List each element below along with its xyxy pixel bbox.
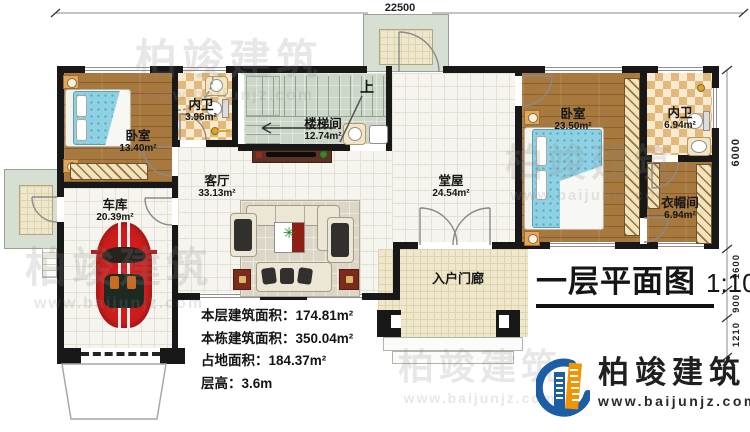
bedroom2-blanket xyxy=(560,129,602,228)
room-area: 33.13m² xyxy=(185,188,249,199)
opening-side-porch-door xyxy=(57,197,64,222)
plan-title-block: 一层平面图 1:100 xyxy=(536,256,718,308)
plan-scale: 1:100 xyxy=(706,268,750,299)
armchair-left-cushion xyxy=(234,219,252,251)
stat-value: 184.37m² xyxy=(269,353,327,368)
room-name: 客厅 xyxy=(185,174,249,188)
label-entry-porch: 入户门廊 xyxy=(405,272,511,287)
bedroom1-wardrobe xyxy=(70,163,148,180)
car-mirror-right xyxy=(151,250,157,254)
stat-row-footprint: 占地面积：184.37m² xyxy=(201,350,353,373)
opening-bath1-door xyxy=(180,140,206,147)
label-hall: 堂屋 24.54m² xyxy=(419,174,483,199)
window-bath2-east xyxy=(712,88,719,128)
driveway-outline xyxy=(62,364,166,419)
opening-stair-living xyxy=(350,144,386,151)
sofa-front-pillow-1 xyxy=(261,267,277,285)
sofa-front-pillow-2 xyxy=(280,268,294,284)
company-logo-icon xyxy=(536,356,590,422)
wall-hall-stub xyxy=(393,242,400,300)
window-bath2-north xyxy=(658,66,703,73)
floor-plan-canvas: ✳ xyxy=(0,0,750,432)
opening-bedroom2-door xyxy=(515,76,522,106)
label-garage: 车库 20.39m² xyxy=(82,198,148,223)
opening-bedroom1-door xyxy=(172,147,178,176)
bedroom1-pillow-1 xyxy=(76,95,87,117)
entry-steps-upper xyxy=(383,337,523,351)
stat-row-floor-area: 本层建筑面积：174.81m² xyxy=(201,305,353,328)
porch-post-right-base xyxy=(499,315,509,328)
stat-value: 174.81m² xyxy=(296,308,354,323)
opening-bath2-door xyxy=(652,155,678,162)
bedroom2-pillow-1 xyxy=(536,136,547,166)
dim-top-value: 22500 xyxy=(368,2,432,14)
stat-label: 本层建筑面积： xyxy=(201,308,296,323)
room-area: 13.40m² xyxy=(105,143,171,154)
car-mirror-left xyxy=(91,250,97,254)
bath1-sink-bowl xyxy=(210,79,223,92)
dim-right-value: 6000 xyxy=(730,138,742,166)
wall-bedroom1-south xyxy=(57,182,178,188)
stair-landing xyxy=(246,76,280,116)
plan-title: 一层平面图 xyxy=(536,256,696,301)
stat-label: 层高： xyxy=(201,376,242,391)
room-name: 入户门廊 xyxy=(405,272,511,287)
room-area: 3.96m² xyxy=(174,112,228,123)
stair-appliance xyxy=(369,125,388,144)
garage-post-right xyxy=(160,348,185,364)
stair-up-text: 上 xyxy=(357,80,377,96)
car-seat-left xyxy=(110,276,119,289)
room-name: 楼梯间 xyxy=(291,117,355,131)
room-name: 车库 xyxy=(82,198,148,212)
bath2-sink-bowl xyxy=(691,140,707,153)
room-name: 内卫 xyxy=(650,106,710,120)
window-bedroom2-north xyxy=(545,66,622,73)
stat-row-height: 层高：3.6m xyxy=(201,373,353,396)
stat-value: 3.6m xyxy=(242,376,273,391)
dim-right-seg-1210: 1210 xyxy=(731,322,742,347)
bedroom2-wardrobe xyxy=(624,78,640,236)
room-area: 24.54m² xyxy=(419,188,483,199)
tv-screen xyxy=(266,152,316,157)
company-website: www.baijunjz.com xyxy=(598,393,750,409)
bedroom2-nightstand-bottom xyxy=(524,231,540,246)
label-stair-up: 上 xyxy=(357,80,377,96)
bedroom2-nightstand-top xyxy=(524,110,540,125)
window-bedroom1-north xyxy=(85,66,150,73)
label-living: 客厅 33.13m² xyxy=(185,174,249,199)
garage-post-left xyxy=(57,348,81,364)
side-table-left xyxy=(233,269,251,290)
room-area: 23.50m² xyxy=(540,121,606,132)
room-area: 12.74m² xyxy=(291,131,355,142)
label-bedroom2: 卧室 23.50m² xyxy=(540,107,606,132)
side-porch-steps xyxy=(42,248,57,278)
label-cloakroom: 衣帽间 6.94m² xyxy=(649,196,711,221)
bedroom1-pillow-2 xyxy=(76,119,87,141)
tv-plant-icon xyxy=(320,151,327,158)
stat-label: 本栋建筑面积： xyxy=(201,331,296,346)
bath2-floor-drain-icon xyxy=(697,84,705,92)
sofa-front-pillow-3 xyxy=(297,267,313,285)
armchair-right-cushion xyxy=(331,223,349,257)
opening-garage-door xyxy=(172,198,178,225)
opening-entry-double-door xyxy=(418,242,492,249)
opening-cloak-door xyxy=(640,218,647,244)
room-area: 6.94m² xyxy=(650,120,710,131)
title-underline xyxy=(536,304,714,308)
room-area: 20.39m² xyxy=(82,212,148,223)
company-name: 柏竣建筑 xyxy=(598,356,750,390)
bath1-drain-pipe xyxy=(218,130,230,132)
garage-door-dashed xyxy=(81,352,160,356)
entry-steps-lower xyxy=(392,351,514,364)
room-name: 衣帽间 xyxy=(649,196,711,210)
label-stairwell: 楼梯间 12.74m² xyxy=(291,117,355,142)
bedroom1-nightstand-top xyxy=(63,75,79,89)
coffee-table-plant-icon: ✳ xyxy=(281,226,297,242)
window-bath1-north xyxy=(183,66,226,73)
stats-block: 本层建筑面积：174.81m² 本栋建筑面积：350.04m² 占地面积：184… xyxy=(201,305,353,395)
company-logo: 柏竣建筑 www.baijunjz.com xyxy=(536,356,750,422)
bedroom2-pillow-2 xyxy=(536,170,547,200)
stat-label: 占地面积： xyxy=(201,353,269,368)
room-name: 卧室 xyxy=(105,129,171,143)
car-seat-right xyxy=(127,276,136,289)
label-bath1: 内卫 3.96m² xyxy=(174,98,228,123)
hall-floor xyxy=(392,73,515,242)
side-porch-floor xyxy=(19,185,53,235)
tv-decor-icon xyxy=(256,152,262,158)
stat-row-building-area: 本栋建筑面积：350.04m² xyxy=(201,328,353,351)
room-name: 卧室 xyxy=(540,107,606,121)
wall-top-stair xyxy=(238,66,367,73)
window-bedroom2-south xyxy=(550,242,615,249)
porch-post-left-base xyxy=(391,315,401,328)
side-table-right xyxy=(339,269,359,290)
back-porch-floor xyxy=(379,29,433,65)
stair-flight-lower xyxy=(246,116,280,144)
label-bedroom1: 卧室 13.40m² xyxy=(105,129,171,154)
label-bath2: 内卫 6.94m² xyxy=(650,106,710,131)
stat-value: 350.04m² xyxy=(296,331,354,346)
room-area: 6.94m² xyxy=(649,210,711,221)
wall-bath1-east xyxy=(232,66,238,147)
car-windshield xyxy=(102,247,146,263)
room-name: 堂屋 xyxy=(419,174,483,188)
room-name: 内卫 xyxy=(174,98,228,112)
